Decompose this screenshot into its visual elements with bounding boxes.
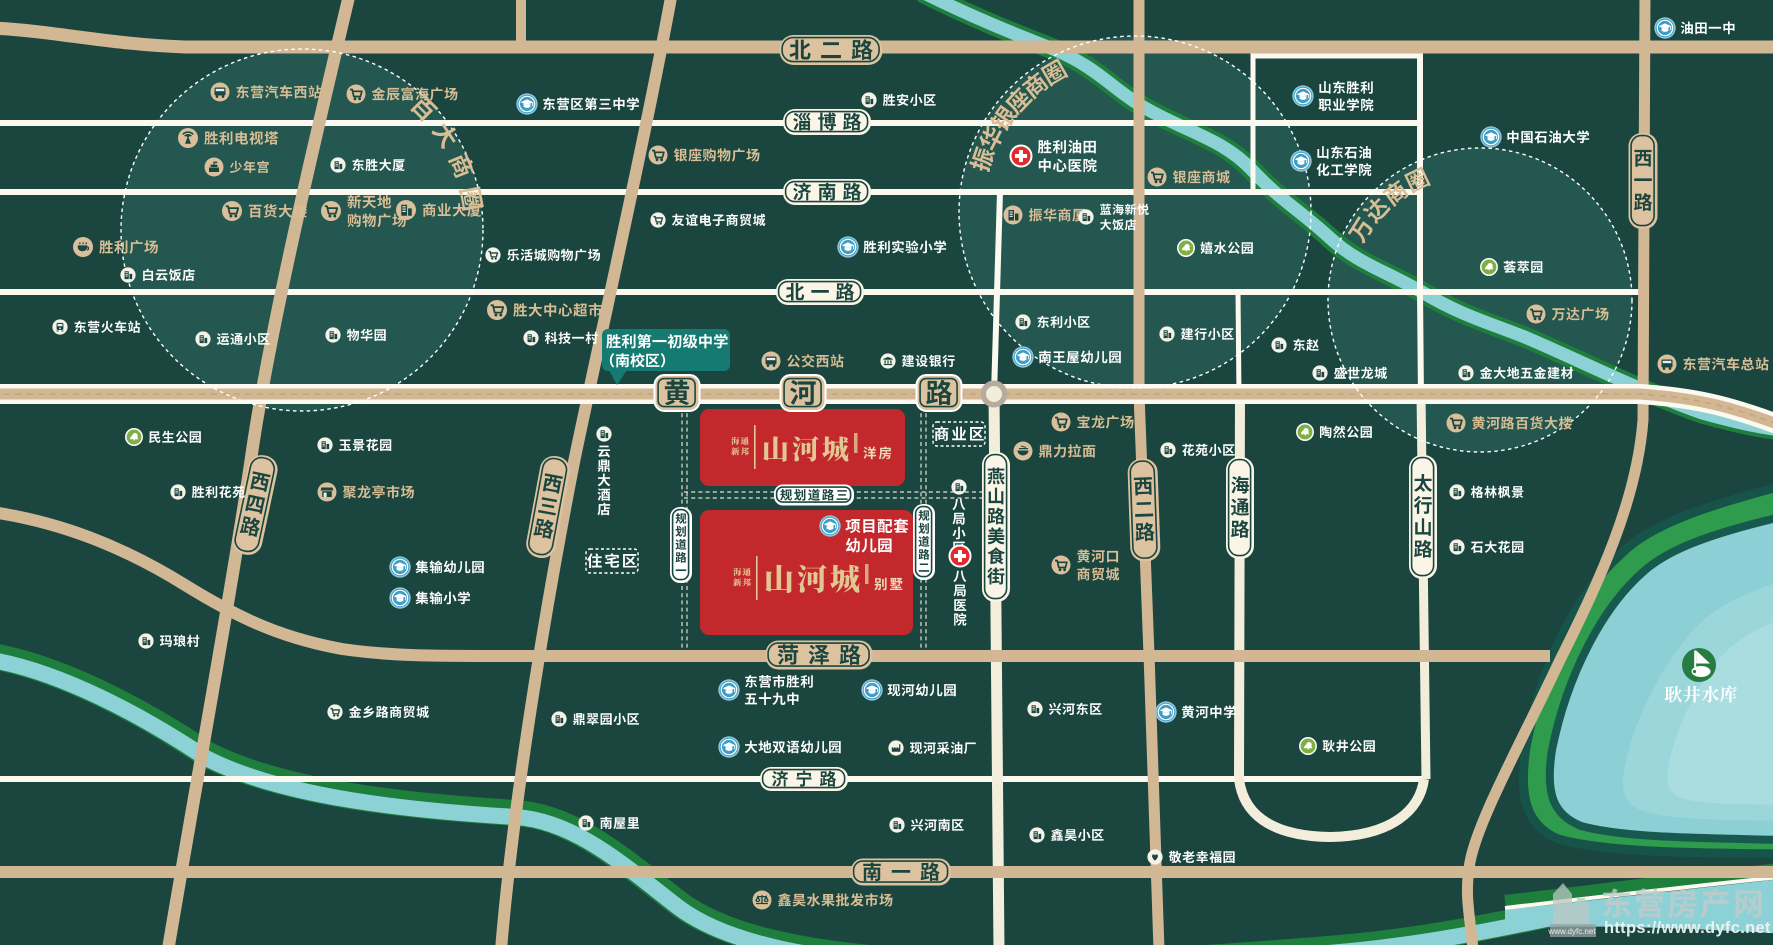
svg-text:https://www.dyfc.net: https://www.dyfc.net (1604, 919, 1771, 937)
svg-text:www.dyfc.net: www.dyfc.net (1547, 927, 1596, 936)
